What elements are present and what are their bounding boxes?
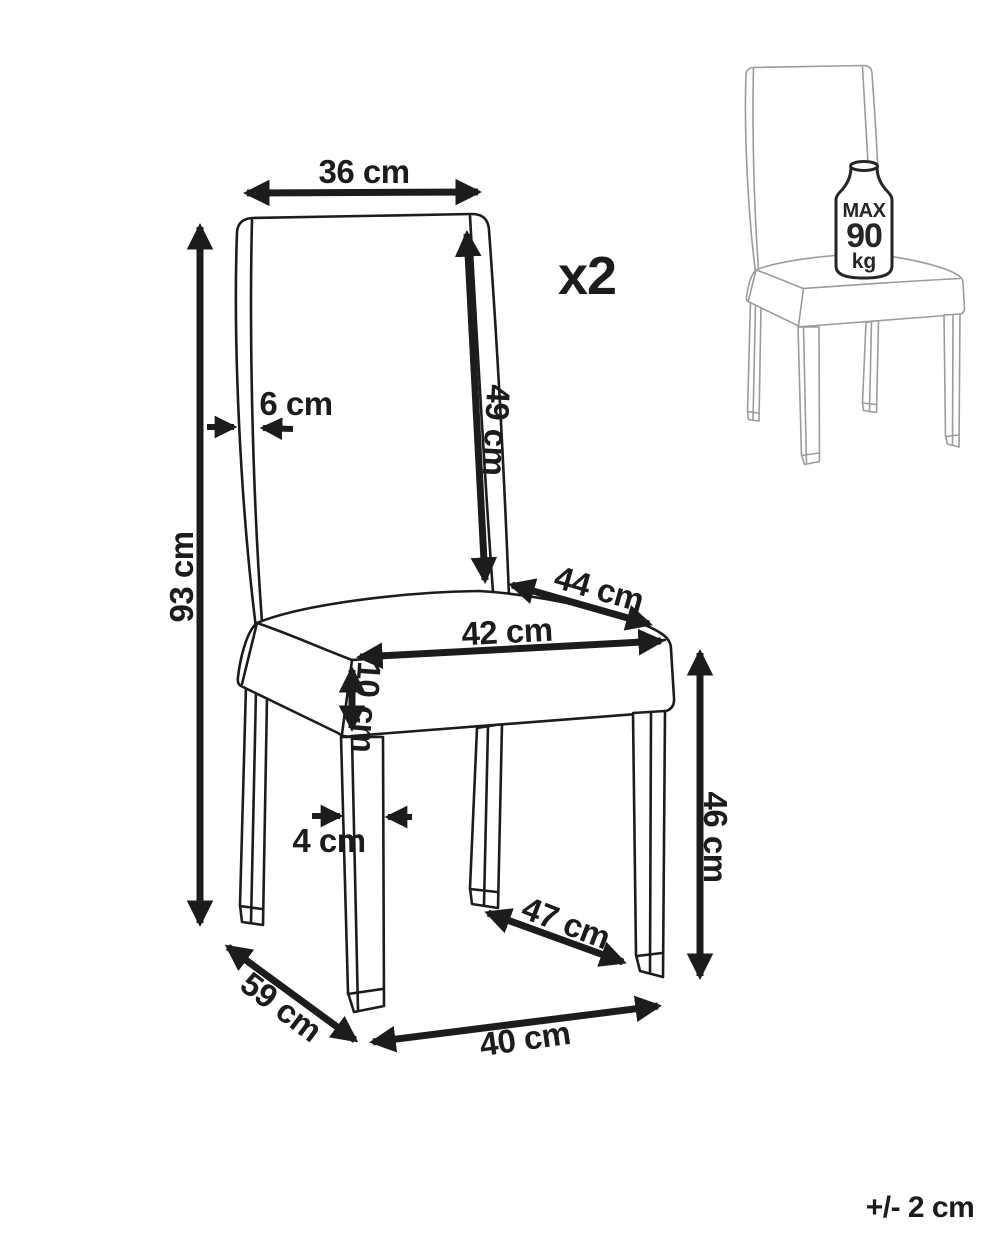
- dimension-label-seat-height: 46 cm: [696, 791, 734, 882]
- max-load-value: 90: [846, 221, 882, 251]
- max-load-unit: kg: [852, 251, 877, 273]
- dimension-arrow-back-width: [247, 192, 478, 193]
- max-load-label: MAX 90 kg: [836, 201, 892, 273]
- dimension-label-seat-thickness: 10 cm: [344, 660, 388, 754]
- dimension-label-total-height: 93 cm: [163, 531, 201, 622]
- quantity-label: x2: [558, 245, 616, 307]
- dimension-label-seat-width: 42 cm: [461, 611, 554, 654]
- tolerance-label: +/- 2 cm: [866, 1191, 975, 1225]
- dimension-label-back-width: 36 cm: [318, 153, 409, 191]
- dimension-label-leg-thickness: 4 cm: [292, 822, 365, 860]
- chair-dimension-diagram: 36 cm 6 cm 49 cm 93 cm 44 cm 42 cm 10 cm…: [0, 0, 1000, 1251]
- dimension-label-backrest-height: 49 cm: [475, 384, 518, 477]
- dimension-label-back-thickness: 6 cm: [259, 385, 332, 423]
